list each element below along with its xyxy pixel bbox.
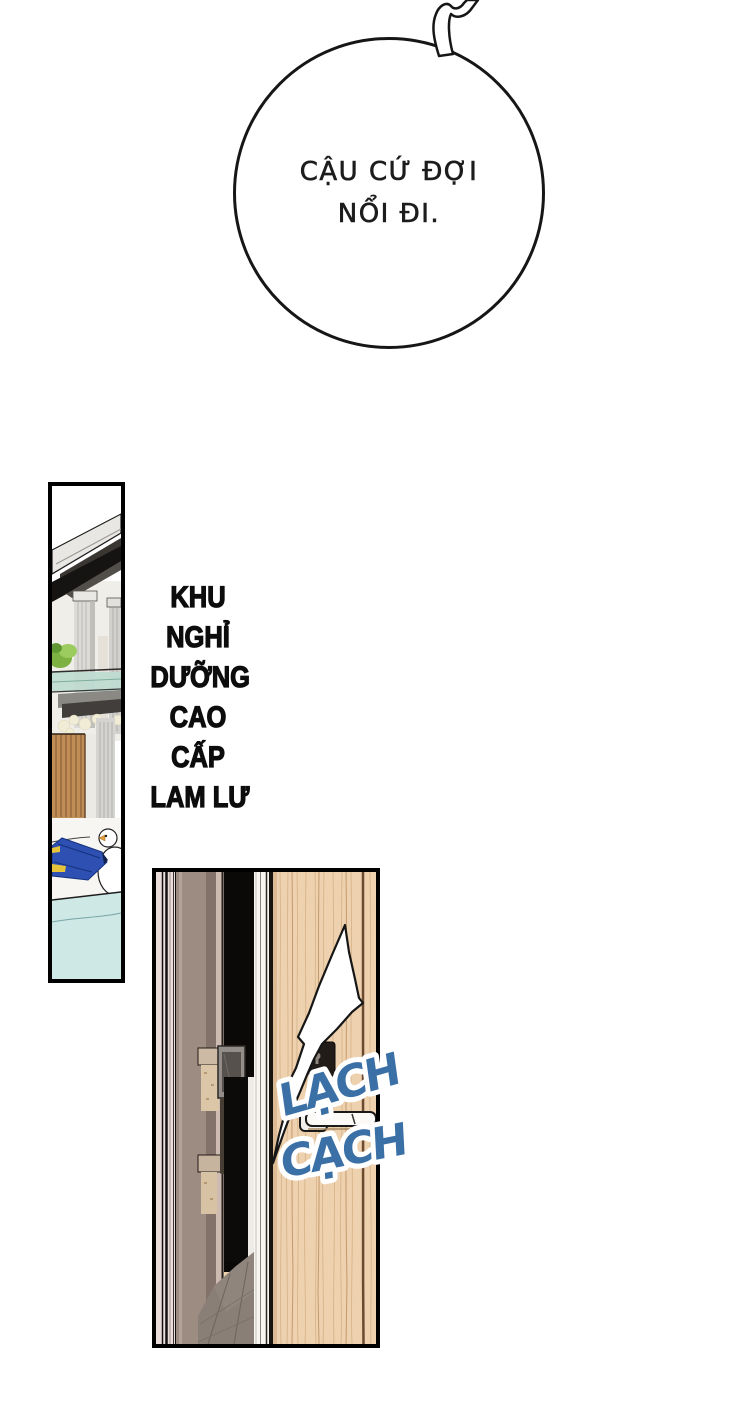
- speech-bubble-text: CẬU CỨ ĐỢI NỔI ĐI.: [300, 151, 479, 235]
- caption-line-2: NGHỈ: [150, 618, 245, 658]
- caption-line-1: KHU: [150, 578, 245, 618]
- bubble-line-2: NỔI ĐI.: [300, 193, 479, 235]
- resort-illustration: [52, 486, 121, 979]
- sfx-overlay: LẠCH CẠCH: [260, 1010, 440, 1220]
- hallway: [156, 872, 273, 1344]
- wooden-fence: [52, 734, 85, 818]
- sfx-word-lach: LẠCH: [276, 1043, 402, 1128]
- speech-bubble-tail: [415, 0, 490, 62]
- tail-shape: [433, 0, 478, 56]
- sfx-word-cach: CẠCH: [279, 1114, 407, 1189]
- caption-text: KHU NGHỈ DƯỠNG CAO CẤP LAM LƯ: [142, 578, 254, 818]
- doorway-opening: [224, 1077, 248, 1262]
- lower-wall: [85, 734, 96, 818]
- caption-line-5: CẤP: [150, 738, 245, 778]
- glass-balcony: [52, 669, 121, 692]
- swimming-pool: [52, 892, 121, 979]
- caption-line-6: LAM LƯ: [150, 778, 245, 818]
- speech-bubble: CẬU CỨ ĐỢI NỔI ĐI.: [233, 37, 545, 349]
- caption-line-4: CAO: [150, 698, 245, 738]
- resort-panel: [48, 482, 125, 983]
- bubble-line-1: CẬU CỨ ĐỢI: [300, 151, 479, 193]
- comic-page: CẬU CỨ ĐỢI NỔI ĐI.: [0, 0, 755, 1426]
- caption-line-3: DƯỠNG: [150, 658, 245, 698]
